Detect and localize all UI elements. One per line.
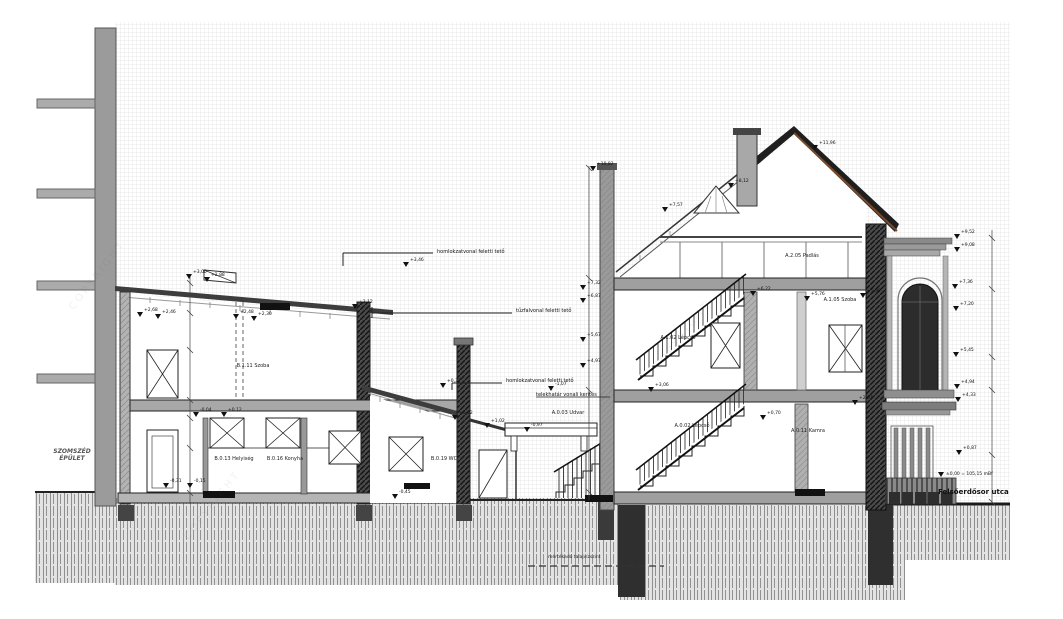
level-marker: +3,46 bbox=[403, 262, 424, 267]
room-label: A.0.03 Udvar bbox=[552, 410, 585, 416]
door bbox=[479, 450, 507, 498]
level-marker: +9,08 bbox=[954, 247, 975, 252]
level-marker: +4,33 bbox=[955, 397, 976, 402]
window bbox=[266, 418, 300, 448]
annotation-label: tűzfalvonal feletti tető bbox=[516, 308, 571, 314]
level-marker: +0,87 bbox=[956, 450, 977, 455]
level-marker: +7,36 bbox=[952, 284, 973, 289]
level-marker: +2,46 bbox=[155, 314, 176, 319]
level-marker: +2,12 bbox=[352, 304, 373, 309]
cornice bbox=[884, 238, 952, 244]
level-marker: +2,88 bbox=[204, 277, 225, 282]
level-marker: +2,87 bbox=[852, 400, 873, 405]
room-label: A.1.05 Szoba bbox=[824, 297, 857, 303]
level-marker: +4,97 bbox=[580, 363, 601, 368]
room-label: A.0.02 Lépcső bbox=[674, 423, 709, 429]
window bbox=[210, 418, 244, 448]
room-label: A.1.02 Lépcső bbox=[660, 335, 695, 341]
window bbox=[711, 323, 740, 368]
groundwater-label: mértékadó talajvízszint bbox=[548, 555, 601, 560]
room-label: A.0.11 Kamra bbox=[791, 428, 825, 434]
level-marker: +5,90 bbox=[860, 293, 881, 298]
sill-band bbox=[884, 390, 954, 398]
level-marker: +9,52 bbox=[954, 234, 975, 239]
level-marker: -0,04 bbox=[193, 412, 212, 417]
room-label: B.0.13 Helyiség bbox=[214, 456, 253, 462]
chimney bbox=[737, 134, 757, 206]
level-marker: +6,87 bbox=[580, 298, 601, 303]
level-marker: +10,82 bbox=[590, 166, 614, 171]
level-marker: +7,20 bbox=[953, 306, 974, 311]
level-marker: +3,06 bbox=[648, 387, 669, 392]
room-label: B.0.19 WC bbox=[431, 456, 457, 462]
level-marker: +1,02 bbox=[484, 423, 505, 428]
level-marker: +0,02 bbox=[452, 415, 473, 420]
window bbox=[389, 437, 423, 471]
level-marker: +8,12 bbox=[728, 183, 749, 188]
level-marker-icon bbox=[938, 472, 944, 477]
balcony-slab bbox=[882, 402, 956, 410]
level-marker: +5,76 bbox=[804, 296, 825, 301]
layer-tag bbox=[404, 483, 430, 489]
layer-tag bbox=[260, 303, 290, 310]
boundary-fence bbox=[505, 423, 597, 436]
ground-slab bbox=[614, 492, 866, 504]
level-marker: -0,97 bbox=[524, 427, 543, 432]
level-marker: -0,31 bbox=[163, 483, 182, 488]
window bbox=[329, 431, 361, 464]
annotation-label: telekhatár vonali kerítés bbox=[536, 392, 597, 398]
level-marker: +5,67 bbox=[580, 337, 601, 342]
level-marker: +5,45 bbox=[953, 352, 974, 357]
window bbox=[829, 325, 862, 372]
level-marker: +11,96 bbox=[812, 145, 836, 150]
level-marker: -1,07 bbox=[548, 386, 567, 391]
level-marker: -0,45 bbox=[392, 494, 411, 499]
level-marker: +2,30 bbox=[251, 316, 272, 321]
room-label: B.0.16 Konyha bbox=[267, 456, 303, 462]
level-marker: +0,12 bbox=[221, 412, 242, 417]
level-marker: +0,37 bbox=[440, 383, 461, 388]
courtyard-firewall bbox=[457, 344, 470, 504]
ground-hatch bbox=[35, 492, 1010, 600]
level-marker: +6,22 bbox=[750, 291, 771, 296]
neighbor-building-label: SZOMSZÉD ÉPÜLET bbox=[46, 448, 98, 462]
level-marker: +4,94 bbox=[954, 384, 975, 389]
datum-level-label: ±0,00 = 105,15 mBf bbox=[938, 472, 993, 477]
level-marker: -0,15 bbox=[187, 483, 206, 488]
level-marker: +7,57 bbox=[662, 207, 683, 212]
layer-tag bbox=[795, 489, 825, 496]
architectural-section-sheet: SZOMSZÉD ÉPÜLET Felsőerdősor utca ±0,00 … bbox=[0, 0, 1063, 619]
room-label: A.2.05 Padlás bbox=[785, 253, 819, 259]
level-marker: +0,70 bbox=[760, 415, 781, 420]
street-name-label: Felsőerdősor utca bbox=[938, 488, 1009, 496]
level-marker: +7,32 bbox=[580, 285, 601, 290]
room-label: B.1.11 Szoba bbox=[237, 363, 270, 369]
annotation-label: homlokzatvonal feletti tető bbox=[437, 249, 505, 255]
street-wall bbox=[866, 224, 886, 510]
